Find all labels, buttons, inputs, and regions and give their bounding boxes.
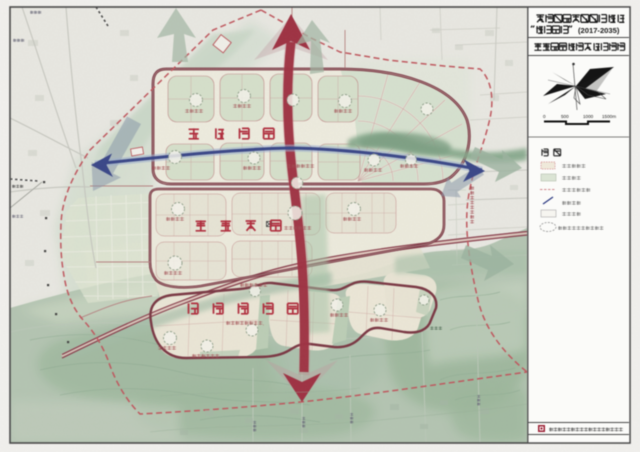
svg-text:1500m: 1500m [602,114,616,119]
svg-text:(2017-2035): (2017-2035) [578,26,620,35]
svg-text:1000: 1000 [583,114,594,119]
svg-text:0: 0 [543,114,546,119]
svg-text:500: 500 [561,114,569,119]
